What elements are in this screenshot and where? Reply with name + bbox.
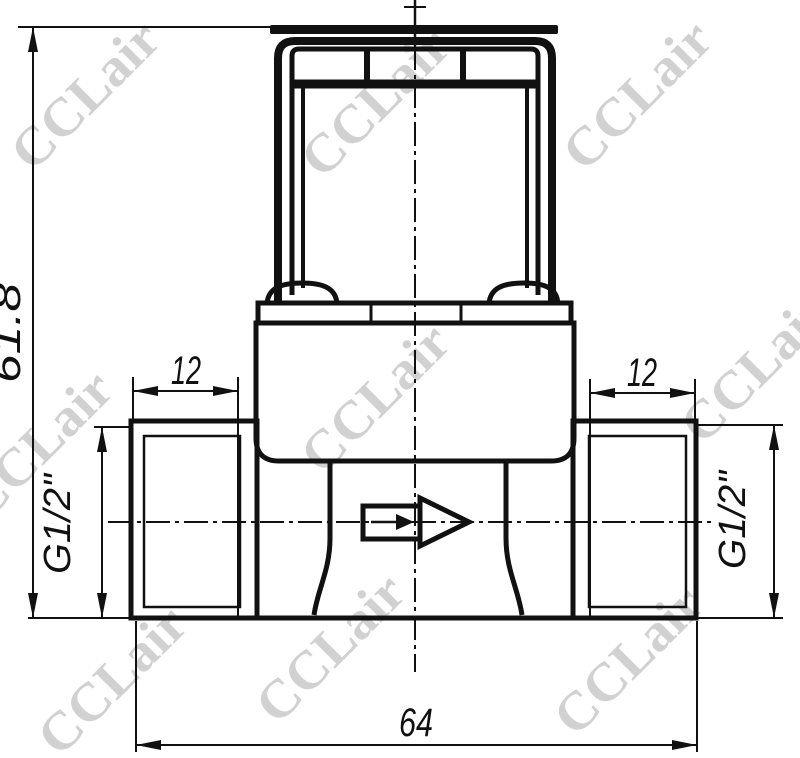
arrowhead-up-icon xyxy=(28,27,38,52)
lower-body-right-flare xyxy=(506,461,522,615)
watermark-text: CCLair xyxy=(0,8,172,181)
arrowhead-left-icon xyxy=(590,388,615,398)
arrowhead-left-icon xyxy=(133,386,158,396)
overall-height-label: 61.8 xyxy=(0,282,29,383)
watermark-text: CCLair xyxy=(541,573,714,746)
arrowhead-down-icon xyxy=(769,593,779,618)
arrowhead-up-icon xyxy=(97,427,107,452)
watermark-text: CCLair xyxy=(243,561,416,734)
arrowhead-down-icon xyxy=(28,593,38,618)
lower-body-left-flare xyxy=(314,461,330,615)
watermark-text: CCLair xyxy=(668,281,800,454)
arrowhead-up-icon xyxy=(769,425,779,450)
right-port-thread-label: G1/2" xyxy=(712,469,754,569)
drawing-canvas: CCLair CCLair CCLair CCLair CCLair CCLai… xyxy=(0,0,800,758)
right-thread-length-label: 12 xyxy=(627,351,657,395)
left-thread-length-label: 12 xyxy=(171,349,201,393)
watermark-text: CCLair xyxy=(550,8,723,181)
valve-technical-drawing: CCLair CCLair CCLair CCLair CCLair CCLai… xyxy=(0,0,800,758)
arrowhead-right-icon xyxy=(672,740,697,750)
left-port-thread-label: G1/2" xyxy=(37,472,79,574)
overall-width-label: 64 xyxy=(399,701,433,745)
bracket-top-plate xyxy=(270,25,558,34)
watermark-layer: CCLair CCLair CCLair CCLair CCLair CCLai… xyxy=(0,8,800,758)
flow-arrow-inner-head-icon xyxy=(396,514,414,530)
arrowhead-left-icon xyxy=(136,740,161,750)
arrowhead-down-icon xyxy=(97,593,107,618)
arrowhead-right-icon xyxy=(213,386,238,396)
